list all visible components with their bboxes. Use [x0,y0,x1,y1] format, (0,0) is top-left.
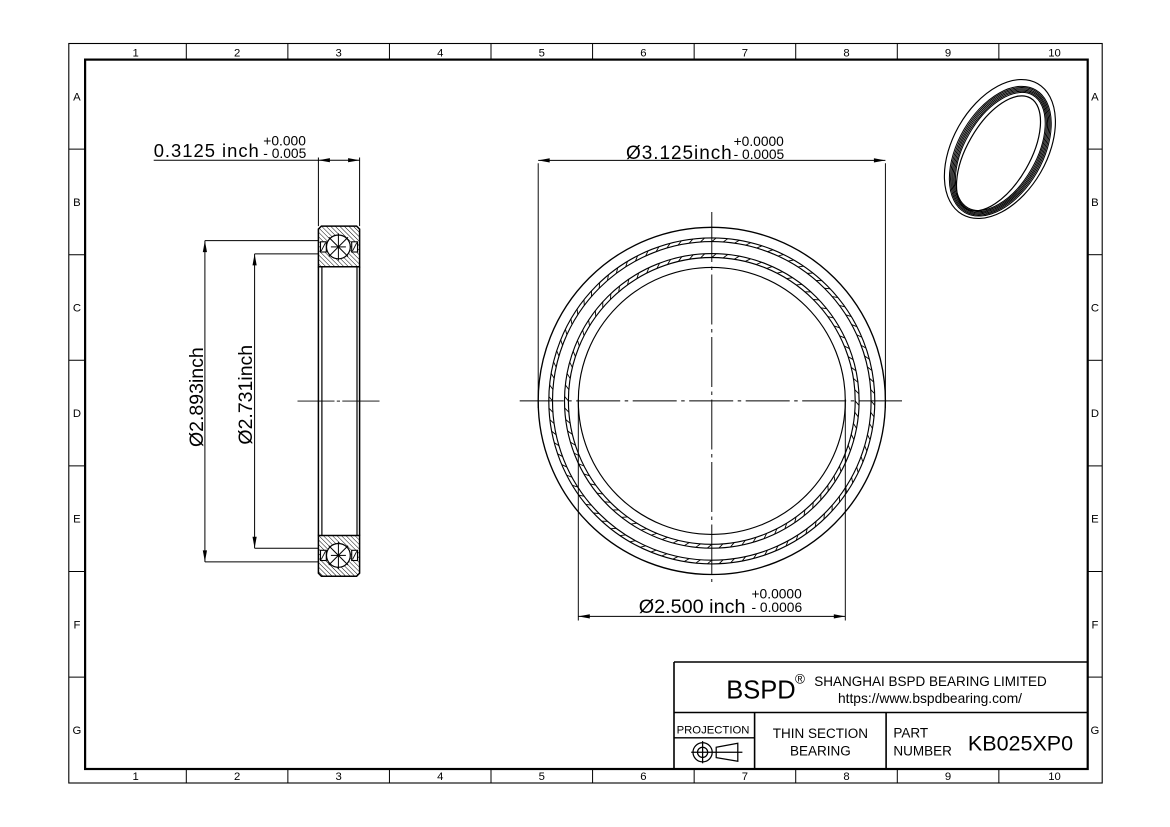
svg-text:C: C [1091,303,1099,315]
svg-text:D: D [73,408,81,420]
svg-text:KB025XP0: KB025XP0 [968,732,1073,756]
svg-text:9: 9 [945,771,951,783]
svg-text:PART: PART [893,726,928,741]
svg-text:5: 5 [539,47,545,59]
svg-text:- 0.0006: - 0.0006 [752,600,803,615]
svg-text:A: A [1091,91,1099,103]
svg-text:G: G [1091,725,1100,737]
svg-text:F: F [1091,619,1098,631]
svg-text:- 0.0005: - 0.0005 [734,147,785,162]
svg-text:Ø3.125inch: Ø3.125inch [626,143,733,164]
svg-text:G: G [73,725,82,737]
svg-text:BSPD: BSPD [726,677,795,705]
svg-text:3: 3 [336,771,342,783]
svg-text:D: D [1091,408,1099,420]
svg-text:2: 2 [234,771,240,783]
svg-text:F: F [73,619,80,631]
svg-text:B: B [73,197,81,209]
svg-text:2: 2 [234,47,240,59]
svg-text:10: 10 [1048,771,1061,783]
svg-text:C: C [73,303,81,315]
svg-text:0.3125 inch: 0.3125 inch [154,140,260,161]
svg-text:Ø2.500 inch: Ø2.500 inch [639,596,746,618]
svg-text:SHANGHAI BSPD BEARING LIMITED: SHANGHAI BSPD BEARING LIMITED [814,674,1047,689]
svg-text:6: 6 [640,771,646,783]
svg-text:Ø2.731inch: Ø2.731inch [235,345,257,445]
svg-text:A: A [73,91,81,103]
svg-text:E: E [73,514,81,526]
svg-text:10: 10 [1048,47,1061,59]
svg-text:Ø2.893inch: Ø2.893inch [186,347,208,447]
svg-text:9: 9 [945,47,951,59]
svg-text:4: 4 [437,771,443,783]
svg-text:5: 5 [539,771,545,783]
svg-text:THIN SECTION: THIN SECTION [773,726,868,741]
svg-text:8: 8 [843,47,849,59]
svg-text:BEARING: BEARING [790,744,851,759]
svg-text:4: 4 [437,47,443,59]
svg-text:8: 8 [843,771,849,783]
svg-text:https://www.bspdbearing.com/: https://www.bspdbearing.com/ [838,691,1022,706]
svg-text:B: B [1091,197,1099,209]
svg-text:7: 7 [742,771,748,783]
svg-text:PROJECTION: PROJECTION [677,725,750,737]
svg-text:®: ® [795,672,805,687]
svg-text:E: E [1091,514,1099,526]
svg-text:- 0.005: - 0.005 [263,146,306,161]
svg-text:1: 1 [133,771,139,783]
svg-text:7: 7 [742,47,748,59]
svg-text:3: 3 [336,47,342,59]
svg-text:NUMBER: NUMBER [893,744,952,759]
svg-text:1: 1 [133,47,139,59]
svg-text:6: 6 [640,47,646,59]
